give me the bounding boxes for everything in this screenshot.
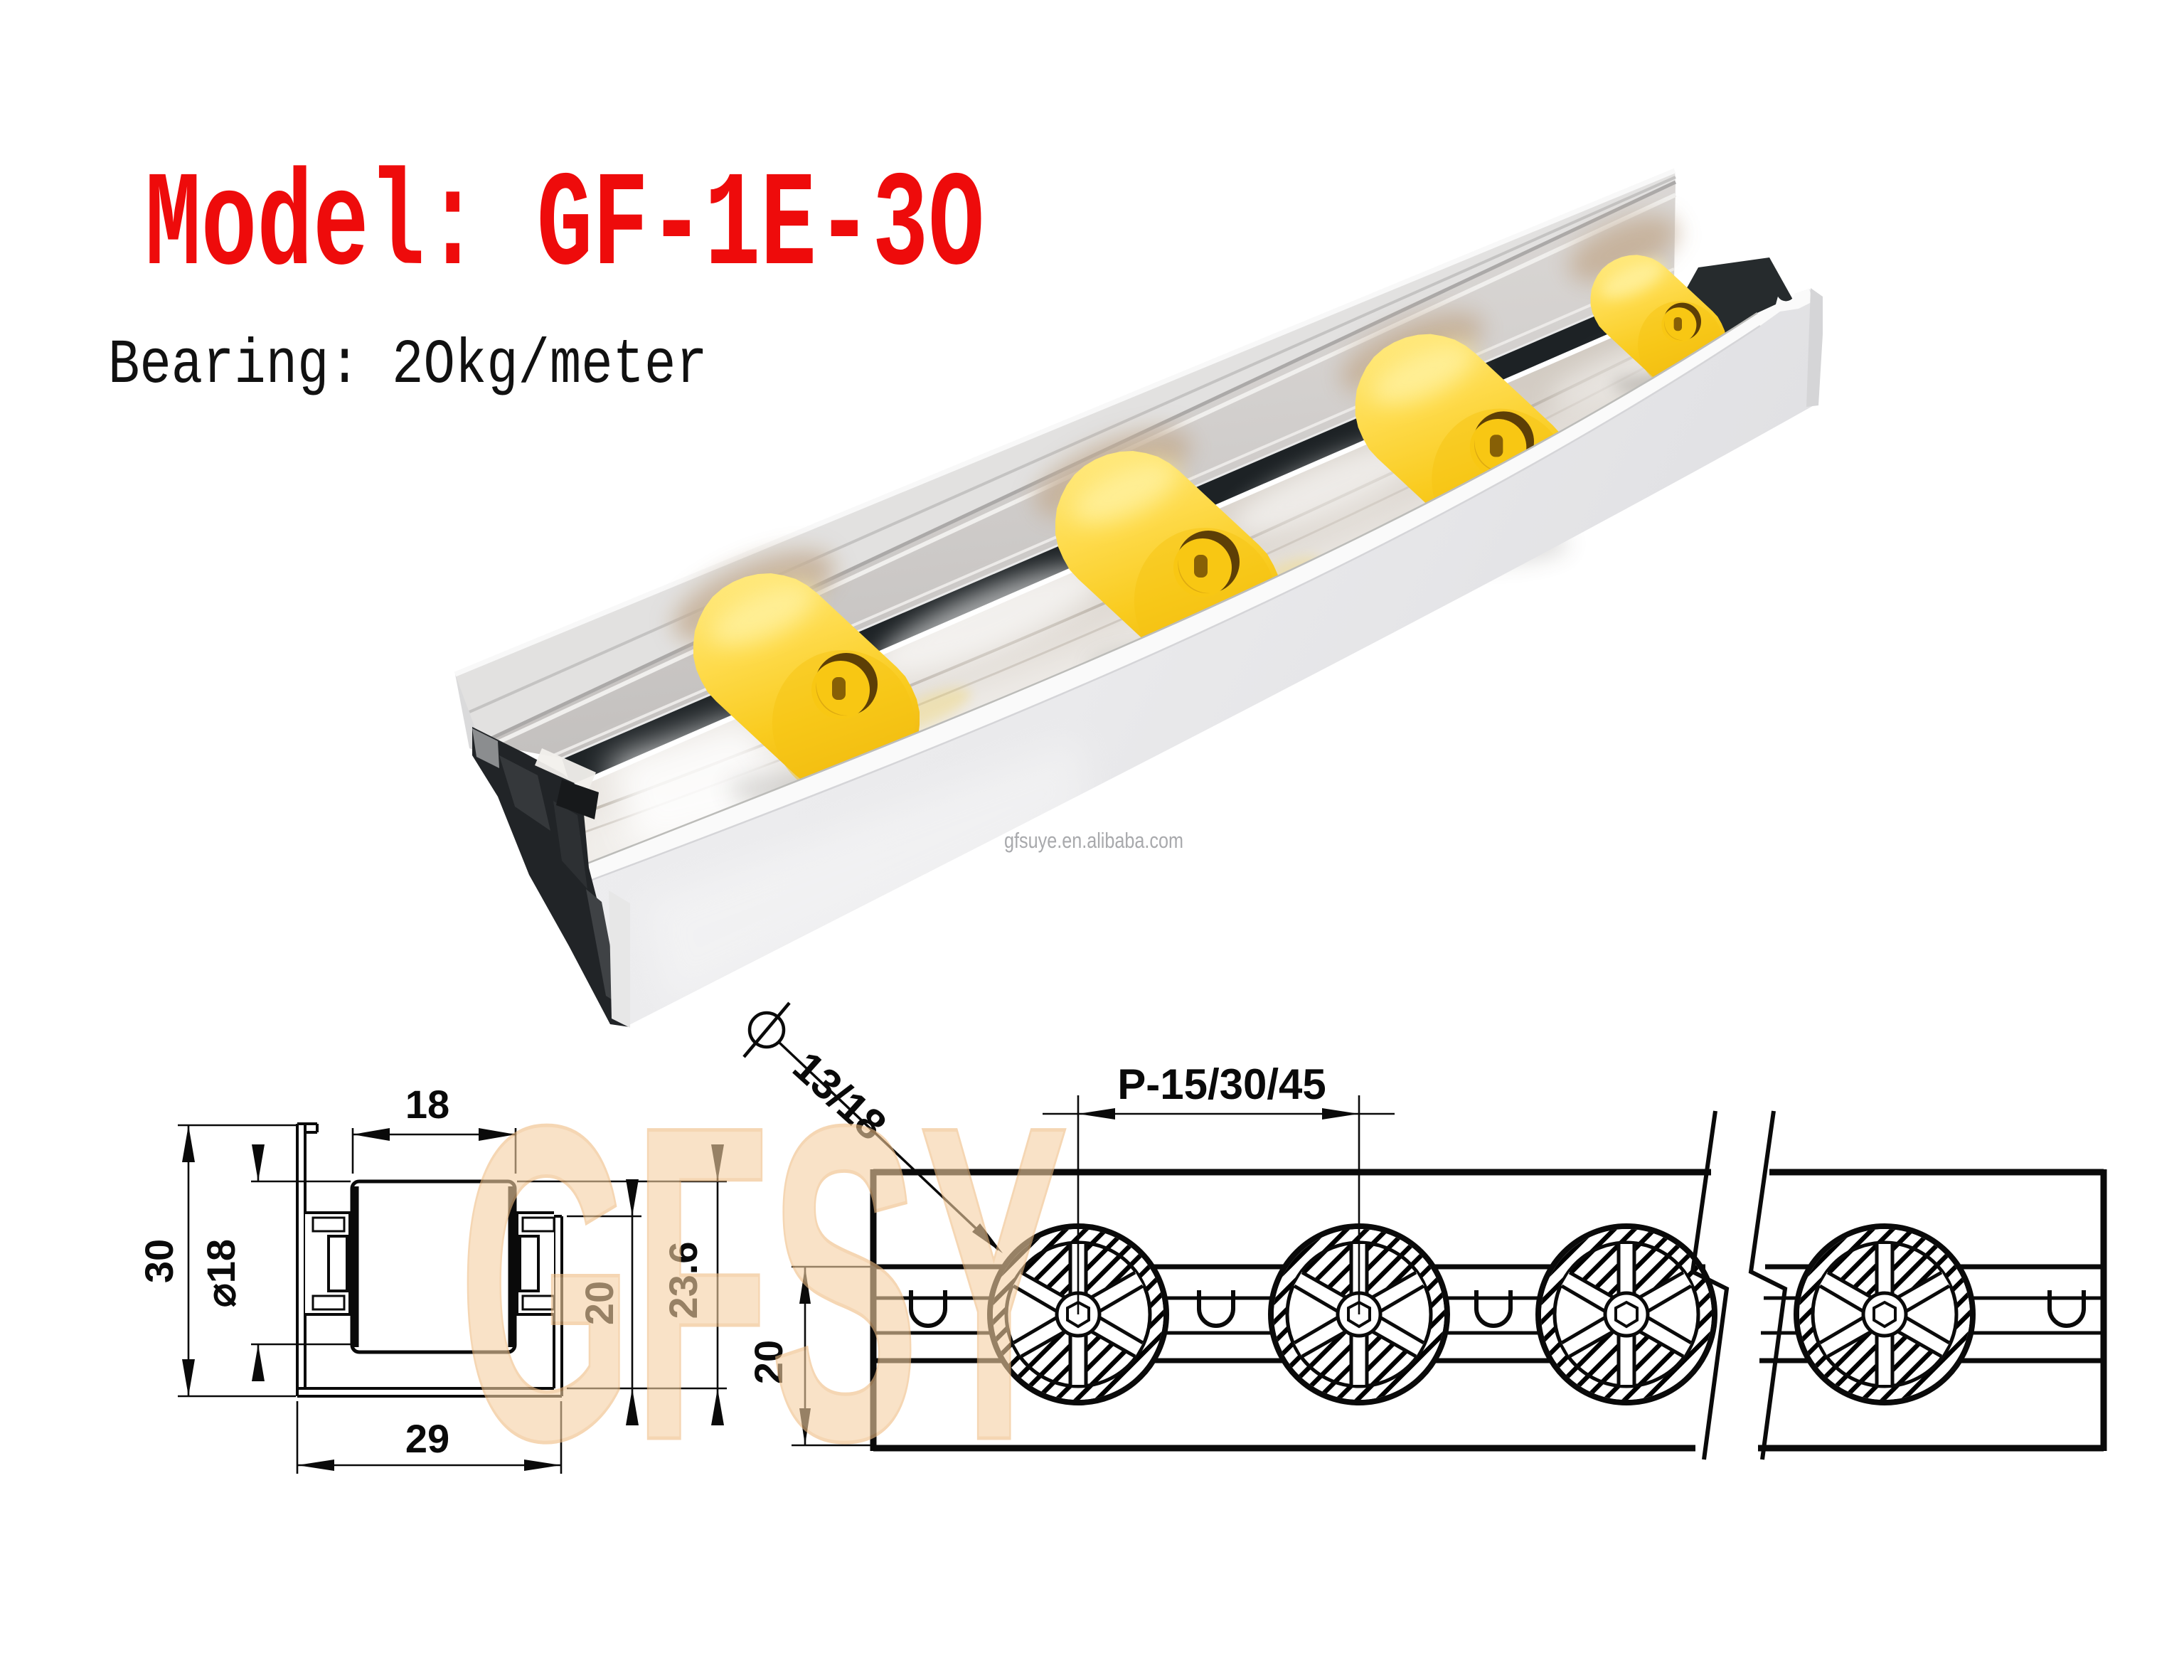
svg-text:29: 29	[405, 1416, 449, 1461]
svg-text:⌀18: ⌀18	[198, 1239, 243, 1307]
svg-text:P-15/30/45: P-15/30/45	[1117, 1060, 1326, 1108]
svg-text:GFSY: GFSY	[459, 1033, 1069, 1534]
svg-text:18: 18	[405, 1082, 449, 1127]
svg-text:Bearing: 2Okg/meter: Bearing: 2Okg/meter	[108, 330, 708, 401]
svg-text:30: 30	[137, 1239, 181, 1283]
svg-text:gfsuye.en.alibaba.com: gfsuye.en.alibaba.com	[1004, 828, 1183, 853]
svg-text:Model: GF-1E-3O: Model: GF-1E-3O	[145, 151, 984, 304]
